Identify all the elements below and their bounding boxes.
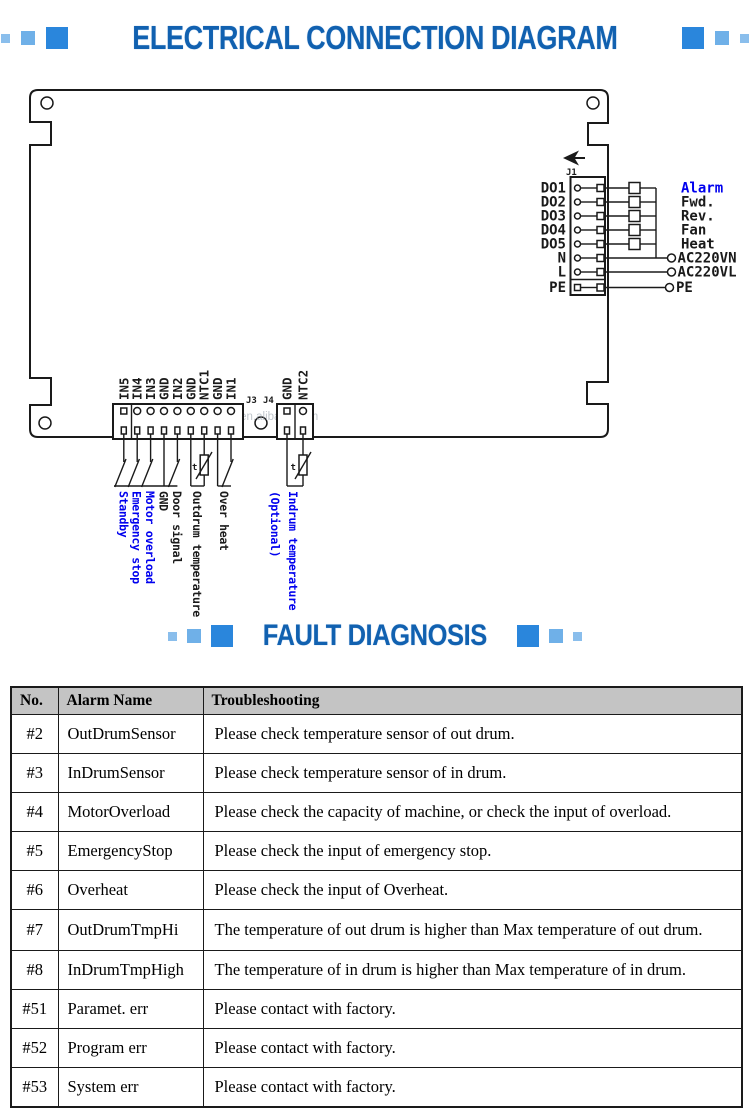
decorative-square (715, 31, 729, 45)
decorative-square (187, 629, 201, 643)
cell-no: #5 (11, 832, 58, 871)
cell-no: #4 (11, 793, 58, 832)
fault-title: FAULT DIAGNOSIS (263, 619, 487, 653)
cell-tip: Please contact with factory. (203, 1029, 742, 1068)
cell-name: Paramet. err (58, 990, 203, 1029)
connector-j1: J1 (541, 151, 737, 297)
input-label-optional: (Optional) (268, 491, 282, 557)
j3-label: J3 (246, 396, 257, 406)
input-labels: Standby Emergency stop Motor overload GN… (116, 491, 300, 617)
cell-tip: Please check temperature sensor of out d… (203, 715, 742, 754)
fault-table: No. Alarm Name Troubleshooting #2 OutDru… (10, 686, 743, 1108)
header-no: No. (11, 687, 58, 715)
table-row: #52 Program err Please contact with fact… (11, 1029, 742, 1068)
j1-pin-label: PE (549, 280, 566, 296)
cell-no: #7 (11, 910, 58, 951)
fault-title-banner: FAULT DIAGNOSIS (0, 616, 750, 656)
mounting-hole (41, 97, 53, 109)
j1-pin-label: L (558, 265, 566, 281)
table-row: #3 InDrumSensor Please check temperature… (11, 754, 742, 793)
mounting-hole (587, 97, 599, 109)
decorative-square (46, 27, 68, 49)
input-label-motor: Motor overload (143, 491, 157, 584)
j4-pin-label: GND (280, 377, 295, 400)
decorative-square (1, 34, 10, 43)
wiring-diagram: https://tzjiefan.en.alibaba.com J1 (0, 75, 750, 620)
cell-name: Program err (58, 1029, 203, 1068)
table-row: #4 MotorOverload Please check the capaci… (11, 793, 742, 832)
table-row: #8 InDrumTmpHigh The temperature of in d… (11, 951, 742, 990)
cell-tip: Please check the input of emergency stop… (203, 832, 742, 871)
table-row: #2 OutDrumSensor Please check temperatur… (11, 715, 742, 754)
mounting-hole (39, 417, 51, 429)
cell-no: #6 (11, 871, 58, 910)
table-row: #5 EmergencyStop Please check the input … (11, 832, 742, 871)
thermistor-t: t (291, 463, 296, 473)
connector-j3: J3 IN5 IN4 IN3 GND IN2 GND NTC1 GND IN1 (113, 370, 257, 439)
j1-function-labels: Alarm Fwd. Rev. Fan Heat AC220VN AC220VL… (676, 181, 737, 297)
page: ELECTRICAL CONNECTION DIAGRAM https://tz… (0, 0, 750, 1108)
table-row: #7 OutDrumTmpHi The temperature of out d… (11, 910, 742, 951)
cell-tip: The temperature of out drum is higher th… (203, 910, 742, 951)
decorative-square (517, 625, 539, 647)
header-name: Alarm Name (58, 687, 203, 715)
table-row: #51 Paramet. err Please contact with fac… (11, 990, 742, 1029)
j3-pin-labels: IN5 IN4 IN3 GND IN2 GND NTC1 GND IN1 (116, 370, 238, 400)
cell-name: InDrumSensor (58, 754, 203, 793)
input-label-outdrum: Outdrum temperature (190, 491, 204, 617)
connector-j4: J4 GND NTC2 (263, 370, 313, 439)
cell-no: #52 (11, 1029, 58, 1068)
power-label: PE (676, 280, 693, 296)
power-label: AC220VL (678, 265, 737, 281)
decorative-square (549, 629, 563, 643)
input-label-gnd: GND (157, 491, 171, 511)
j3-pin-label: IN1 (224, 377, 239, 400)
electrical-title: ELECTRICAL CONNECTION DIAGRAM (132, 19, 617, 57)
cell-name: Overheat (58, 871, 203, 910)
table-row: #6 Overheat Please check the input of Ov… (11, 871, 742, 910)
cell-tip: The temperature of in drum is higher tha… (203, 951, 742, 990)
cell-name: OutDrumTmpHi (58, 910, 203, 951)
decorative-square (573, 632, 582, 641)
input-label-overheat: Over heat (217, 491, 231, 551)
input-label-emergency: Emergency stop (130, 491, 144, 584)
input-label-standby: Standby (116, 491, 130, 538)
table-row: #53 System err Please contact with facto… (11, 1068, 742, 1108)
thermistor-t: t (192, 463, 197, 473)
j1-body (571, 177, 606, 295)
cell-name: OutDrumSensor (58, 715, 203, 754)
input-label-indrum: Indrum temperature (286, 491, 300, 611)
decorative-square (21, 31, 35, 45)
cell-no: #3 (11, 754, 58, 793)
cell-name: MotorOverload (58, 793, 203, 832)
decorative-square (682, 27, 704, 49)
cell-no: #53 (11, 1068, 58, 1108)
cell-tip: Please check temperature sensor of in dr… (203, 754, 742, 793)
decorative-square (211, 625, 233, 647)
decorative-square (740, 34, 749, 43)
table-header-row: No. Alarm Name Troubleshooting (11, 687, 742, 715)
j4-label: J4 (263, 396, 274, 406)
j1-pin-labels: DO1 DO2 DO3 DO4 DO5 N L PE (541, 181, 566, 297)
cell-no: #51 (11, 990, 58, 1029)
cell-no: #2 (11, 715, 58, 754)
j1-output-wiring (604, 183, 676, 292)
cell-no: #8 (11, 951, 58, 990)
cell-name: System err (58, 1068, 203, 1108)
header-tip: Troubleshooting (203, 687, 742, 715)
input-label-door: Door signal (170, 491, 184, 564)
j4-pin-label: NTC2 (296, 370, 311, 400)
cell-tip: Please contact with factory. (203, 1068, 742, 1108)
cell-tip: Please contact with factory. (203, 990, 742, 1029)
cell-name: InDrumTmpHigh (58, 951, 203, 990)
input-wiring: t t (114, 434, 311, 487)
cell-name: EmergencyStop (58, 832, 203, 871)
cell-tip: Please check the capacity of machine, or… (203, 793, 742, 832)
electrical-title-banner: ELECTRICAL CONNECTION DIAGRAM (0, 16, 750, 60)
decorative-square (168, 632, 177, 641)
cell-tip: Please check the input of Overheat. (203, 871, 742, 910)
